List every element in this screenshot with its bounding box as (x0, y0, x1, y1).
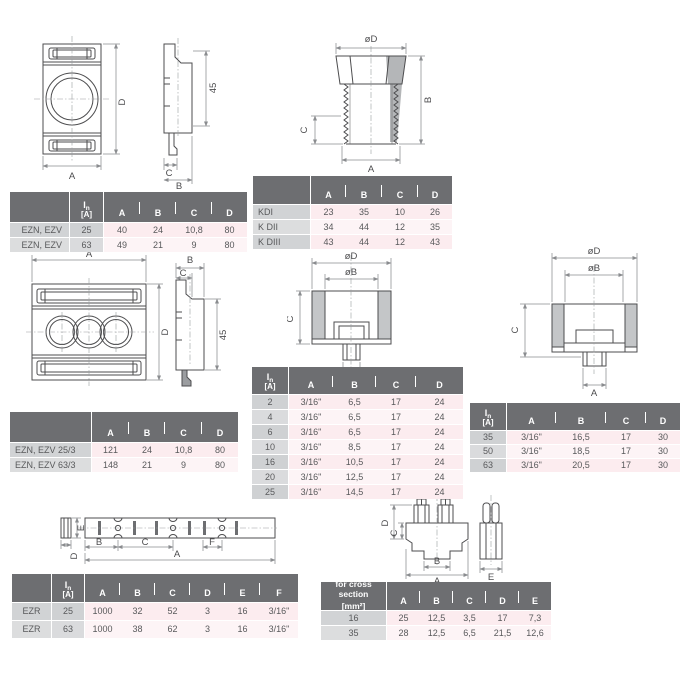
rated-current-value: 6 (252, 424, 289, 439)
column-letter: A (99, 589, 106, 598)
rated-current-header: In[A] (70, 192, 104, 222)
drawing-clamp-large: øD øB C A (502, 242, 687, 397)
dimension-value: 35 (346, 204, 382, 219)
dimension-value: 3/16" (289, 469, 333, 484)
dimension-value: 17 (376, 484, 416, 499)
dimension-value: 10,8 (176, 222, 212, 237)
column-header: A (289, 367, 333, 394)
dimension-value: 3/16" (507, 430, 556, 444)
dimension-value: 34 (311, 219, 346, 234)
dimension-value: 28 (387, 625, 420, 640)
rated-current-value: 63 (470, 458, 507, 472)
column-header: B (420, 582, 453, 610)
rated-current-header: In[A] (252, 367, 289, 394)
dimension-value: 30 (646, 444, 680, 458)
dim-label-od: øD (588, 246, 601, 257)
row-label: EZN, EZV (10, 237, 70, 252)
dimension-value: 43 (418, 234, 452, 249)
column-header: D (418, 176, 452, 204)
dimension-value: 18,5 (556, 444, 606, 458)
label-header-line: for cross section (321, 580, 386, 600)
column-letter: D (226, 209, 233, 218)
column-letter: C (169, 589, 176, 598)
dim-label-45: 45 (208, 83, 219, 94)
dimension-value: 17 (606, 444, 646, 458)
table-kd-glands: ABCDKDI23351026K DII34441235K DIII434412… (253, 176, 452, 249)
dimension-value: 12,5 (333, 469, 376, 484)
dimension-value: 148 (92, 457, 129, 472)
column-header: C (606, 403, 646, 430)
dimension-value: 80 (202, 442, 238, 457)
dimension-value: 80 (212, 237, 247, 252)
column-header: F (260, 574, 298, 602)
column-letter: A (107, 429, 114, 438)
column-letter: D (660, 417, 667, 426)
dimension-value: 9 (176, 237, 212, 252)
column-header: B (556, 403, 606, 430)
dimension-value: 40 (104, 222, 140, 237)
dimension-value: 3/16" (289, 409, 333, 424)
column-header: C (376, 367, 416, 394)
dimension-value: 3/16" (260, 602, 298, 620)
dimension-value: 12,5 (420, 610, 453, 625)
rated-current-value: 16 (252, 454, 289, 469)
row-label: 16 (321, 610, 387, 625)
rated-current-value: 63 (52, 620, 85, 638)
dimension-value: 12,5 (420, 625, 453, 640)
dimension-value: 3/16" (289, 394, 333, 409)
rated-current-value: 50 (470, 444, 507, 458)
dim-label-a: A (69, 171, 76, 182)
dimension-value: 24 (140, 222, 176, 237)
column-header: A (507, 403, 556, 430)
column-header: E (519, 582, 551, 610)
column-letter: B (361, 191, 368, 200)
dimension-value: 3/16" (260, 620, 298, 638)
table-label-header: for cross section[mm²] (321, 582, 387, 610)
dimension-value: 52 (155, 602, 190, 620)
current-subscript: n (269, 377, 273, 384)
column-header: B (346, 176, 382, 204)
column-letter: D (217, 429, 224, 438)
column-letter: A (119, 209, 126, 218)
dim-label-c: C (510, 326, 521, 333)
dimension-value: 17 (376, 454, 416, 469)
column-letter: C (623, 417, 630, 426)
column-letter: D (432, 191, 439, 200)
dimension-value: 17 (376, 409, 416, 424)
table-label-header (10, 412, 92, 442)
dimension-value: 24 (416, 439, 463, 454)
dimension-value: 6,5 (333, 409, 376, 424)
row-label: EZN, EZV 25/3 (10, 442, 92, 457)
column-letter: A (400, 597, 407, 606)
dim-label-c: C (142, 537, 149, 548)
column-header: D (646, 403, 680, 430)
column-header: B (140, 192, 176, 222)
dimension-value: 6,5 (453, 625, 486, 640)
dim-label-d: D (69, 552, 80, 559)
column-letter: C (191, 209, 198, 218)
column-header: A (85, 574, 120, 602)
column-header: A (311, 176, 346, 204)
dimension-value: 16 (225, 602, 260, 620)
row-label: K DIII (253, 234, 311, 249)
dimension-value: 12 (382, 219, 418, 234)
column-header: A (387, 582, 420, 610)
current-subscript: n (67, 585, 71, 592)
dim-label-c: C (287, 315, 296, 322)
column-letter: A (325, 191, 332, 200)
dimension-value: 14,5 (333, 484, 376, 499)
dimension-value: 21 (140, 237, 176, 252)
column-header: D (212, 192, 247, 222)
dim-label-c: C (180, 268, 187, 279)
column-letter: A (308, 381, 315, 390)
dimension-value: 3/16" (289, 484, 333, 499)
row-label: KDI (253, 204, 311, 219)
dim-label-e: E (76, 525, 87, 531)
dimension-value: 17 (376, 394, 416, 409)
current-unit: [A] (264, 383, 275, 391)
rated-current-value: 35 (470, 430, 507, 444)
dimension-value: 3,5 (453, 610, 486, 625)
column-letter: B (578, 417, 585, 426)
dimension-value: 30 (646, 430, 680, 444)
dimension-value: 30 (646, 458, 680, 472)
column-header: A (104, 192, 140, 222)
dimension-value: 44 (346, 234, 382, 249)
column-letter: D (436, 381, 443, 390)
column-letter: B (155, 209, 162, 218)
dim-label-f: F (209, 537, 215, 548)
dimension-value: 16 (225, 620, 260, 638)
dimension-value: 12 (382, 234, 418, 249)
current-subscript: n (487, 413, 491, 420)
dimension-value: 24 (416, 469, 463, 484)
dimension-value: 121 (92, 442, 129, 457)
dimension-value: 38 (120, 620, 155, 638)
column-letter: D (204, 589, 211, 598)
row-label: EZR (12, 602, 52, 620)
rated-current-value: 2 (252, 394, 289, 409)
column-letter: B (144, 429, 151, 438)
dim-label-a: A (368, 164, 375, 174)
dimension-value: 3/16" (289, 454, 333, 469)
column-letter: B (433, 597, 440, 606)
datasheet-page: A D 45 C B øD B C A (0, 0, 687, 687)
dim-label-c: C (389, 529, 400, 536)
dimension-value: 17 (376, 439, 416, 454)
dimension-value: 49 (104, 237, 140, 252)
table-label-header (12, 574, 52, 602)
column-header: C (176, 192, 212, 222)
dim-label-c: C (299, 126, 310, 133)
current-subscript: n (86, 205, 90, 212)
dimension-value: 43 (311, 234, 346, 249)
dimension-value: 24 (416, 424, 463, 439)
column-header: C (453, 582, 486, 610)
current-unit: [A] (482, 419, 493, 427)
rated-current-value: 20 (252, 469, 289, 484)
rated-current-value: 4 (252, 409, 289, 424)
table-clamps-35-63a: In[A]ABCD353/16"16,51730503/16"18,517306… (470, 403, 680, 472)
dim-label-b: B (423, 97, 434, 103)
dimension-value: 10,8 (165, 442, 202, 457)
drawing-kd-gland: øD B C A (298, 32, 443, 174)
dim-label-ob: øB (588, 263, 600, 274)
dimension-value: 44 (346, 219, 382, 234)
drawing-clamp-small: øD øB C A (287, 249, 415, 381)
table-ezn-ezv-3pole: ABCDEZN, EZV 25/31212410,880EZN, EZV 63/… (10, 412, 238, 472)
dim-label-45: 45 (218, 330, 229, 341)
column-letter: C (393, 381, 400, 390)
column-header: B (333, 367, 376, 394)
column-header: C (165, 412, 202, 442)
dimension-value: 3 (190, 620, 225, 638)
dim-label-a: A (174, 549, 181, 560)
dim-label-d: D (160, 328, 171, 335)
column-letter: C (466, 597, 473, 606)
dimension-value: 24 (416, 484, 463, 499)
dimension-value: 80 (212, 222, 247, 237)
column-letter: C (397, 191, 404, 200)
dim-label-b: B (96, 537, 102, 548)
dimension-value: 20,5 (556, 458, 606, 472)
dimension-value: 35 (418, 219, 452, 234)
dimension-value: 12,6 (519, 625, 551, 640)
row-label: K DII (253, 219, 311, 234)
dimension-value: 6,5 (333, 424, 376, 439)
dimension-value: 6,5 (333, 394, 376, 409)
row-label: EZN, EZV 63/3 (10, 457, 92, 472)
column-letter: B (351, 381, 358, 390)
dimension-value: 3/16" (507, 444, 556, 458)
dimension-value: 24 (129, 442, 165, 457)
drawing-ezn-ezv-single: A D 45 C B (28, 18, 223, 190)
dimension-value: 17 (376, 424, 416, 439)
column-header: D (416, 367, 463, 394)
column-letter: E (239, 589, 245, 598)
dimension-value: 80 (202, 457, 238, 472)
drawing-ezn-ezv-triple: A D B C 45 (14, 250, 232, 400)
dimension-value: 3/16" (289, 439, 333, 454)
column-header: D (202, 412, 238, 442)
rated-current-value: 63 (70, 237, 104, 252)
column-header: D (190, 574, 225, 602)
drawing-terminal-block: D C B A E (380, 493, 512, 585)
column-letter: D (499, 597, 506, 606)
dimension-value: 7,3 (519, 610, 551, 625)
dim-label-od: øD (345, 251, 358, 262)
dim-label-a: A (591, 388, 598, 397)
column-letter: A (528, 417, 535, 426)
column-header: E (225, 574, 260, 602)
dimension-value: 17 (606, 430, 646, 444)
column-letter: C (180, 429, 187, 438)
dimension-value: 17 (376, 469, 416, 484)
column-header: A (92, 412, 129, 442)
dimension-value: 32 (120, 602, 155, 620)
dimension-value: 17 (486, 610, 519, 625)
table-ezr-busbar: In[A]ABCDEFEZR25100032523163/16"EZR63100… (12, 574, 298, 638)
dim-label-d: D (117, 98, 128, 105)
table-ezn-ezv-1pole: In[A]ABCDEZN, EZV25402410,880EZN, EZV634… (10, 192, 247, 252)
dimension-value: 21,5 (486, 625, 519, 640)
dim-label-d: D (380, 519, 391, 526)
dimension-value: 1000 (85, 620, 120, 638)
row-label: 35 (321, 625, 387, 640)
column-header: C (155, 574, 190, 602)
dim-label-ob: øB (345, 267, 357, 278)
column-header: D (486, 582, 519, 610)
table-label-header (253, 176, 311, 204)
dim-label-b: B (187, 255, 193, 266)
dimension-value: 9 (165, 457, 202, 472)
dimension-value: 24 (416, 394, 463, 409)
current-unit: [A] (81, 211, 92, 219)
rated-current-header: In[A] (52, 574, 85, 602)
dim-label-b: B (176, 181, 182, 190)
row-label: EZR (12, 620, 52, 638)
table-clamps-2-25a: In[A]ABCD23/16"6,5172443/16"6,5172463/16… (252, 367, 463, 499)
current-unit: [A] (62, 591, 73, 599)
dim-label-od: øD (365, 34, 378, 45)
rated-current-value: 25 (52, 602, 85, 620)
dimension-value: 1000 (85, 602, 120, 620)
dim-label-c: C (166, 168, 173, 179)
column-header: C (382, 176, 418, 204)
drawing-ezr-busbar: E D B C F A (25, 496, 277, 578)
dimension-value: 21 (129, 457, 165, 472)
dimension-value: 62 (155, 620, 190, 638)
column-header: B (129, 412, 165, 442)
dimension-value: 10 (382, 204, 418, 219)
column-header: B (120, 574, 155, 602)
column-letter: B (134, 589, 141, 598)
dimension-value: 23 (311, 204, 346, 219)
rated-current-value: 10 (252, 439, 289, 454)
dimension-value: 24 (416, 454, 463, 469)
dimension-value: 17 (606, 458, 646, 472)
dimension-value: 16,5 (556, 430, 606, 444)
dimension-value: 8,5 (333, 439, 376, 454)
column-letter: E (532, 597, 538, 606)
column-letter: F (276, 589, 282, 598)
dimension-value: 10,5 (333, 454, 376, 469)
dimension-value: 26 (418, 204, 452, 219)
row-label: EZN, EZV (10, 222, 70, 237)
rated-current-value: 25 (70, 222, 104, 237)
dimension-value: 24 (416, 409, 463, 424)
dimension-value: 25 (387, 610, 420, 625)
dim-label-b: B (434, 556, 440, 567)
table-cross-section: for cross section[mm²]ABCDE162512,53,517… (321, 582, 551, 640)
rated-current-header: In[A] (470, 403, 507, 430)
dimension-value: 3/16" (507, 458, 556, 472)
dimension-value: 3/16" (289, 424, 333, 439)
dimension-value: 3 (190, 602, 225, 620)
rated-current-value: 25 (252, 484, 289, 499)
table-label-header (10, 192, 70, 222)
